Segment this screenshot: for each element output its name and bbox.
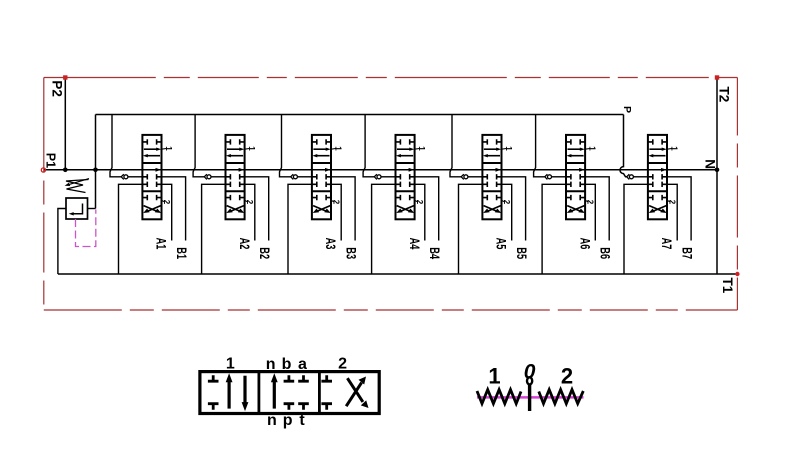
svg-text:a: a <box>298 356 307 373</box>
svg-text:N: N <box>702 159 717 169</box>
svg-text:B4: B4 <box>427 247 444 259</box>
svg-text:B6: B6 <box>597 247 614 259</box>
svg-text:1: 1 <box>504 146 513 151</box>
svg-text:2: 2 <box>332 200 341 205</box>
svg-text:1: 1 <box>587 146 596 151</box>
svg-text:n: n <box>267 412 277 429</box>
svg-text:2: 2 <box>245 200 254 205</box>
svg-text:B1: B1 <box>174 247 191 259</box>
svg-text:B3: B3 <box>343 247 360 259</box>
svg-text:P: P <box>621 106 633 113</box>
svg-text:b: b <box>282 356 292 373</box>
svg-text:T2: T2 <box>717 87 732 103</box>
svg-text:t: t <box>299 412 305 429</box>
svg-text:2: 2 <box>586 200 595 205</box>
svg-text:B5: B5 <box>514 247 531 259</box>
svg-text:A5: A5 <box>493 238 510 250</box>
svg-text:1: 1 <box>669 146 678 151</box>
svg-text:1: 1 <box>226 356 235 373</box>
svg-text:P2: P2 <box>50 80 65 97</box>
svg-text:A6: A6 <box>577 238 594 250</box>
svg-text:T1: T1 <box>720 278 735 294</box>
svg-text:A2: A2 <box>236 238 253 250</box>
svg-text:n: n <box>266 356 276 373</box>
svg-text:2: 2 <box>561 363 573 388</box>
svg-text:1: 1 <box>488 363 500 388</box>
svg-text:1: 1 <box>417 146 426 151</box>
svg-text:P1: P1 <box>43 153 57 168</box>
svg-text:2: 2 <box>502 200 511 205</box>
svg-text:1: 1 <box>247 146 256 151</box>
svg-text:A3: A3 <box>323 238 340 250</box>
svg-text:A1: A1 <box>153 238 170 250</box>
svg-text:1: 1 <box>333 146 342 151</box>
svg-text:2: 2 <box>415 200 424 205</box>
svg-text:B2: B2 <box>257 247 274 259</box>
svg-text:0: 0 <box>524 360 536 383</box>
svg-text:B7: B7 <box>679 247 696 259</box>
svg-text:2: 2 <box>668 200 677 205</box>
svg-text:1: 1 <box>164 146 173 151</box>
svg-text:A7: A7 <box>659 238 676 250</box>
svg-text:2: 2 <box>338 356 347 373</box>
svg-text:p: p <box>283 412 293 429</box>
svg-text:2: 2 <box>162 200 171 205</box>
svg-text:A4: A4 <box>406 238 423 250</box>
